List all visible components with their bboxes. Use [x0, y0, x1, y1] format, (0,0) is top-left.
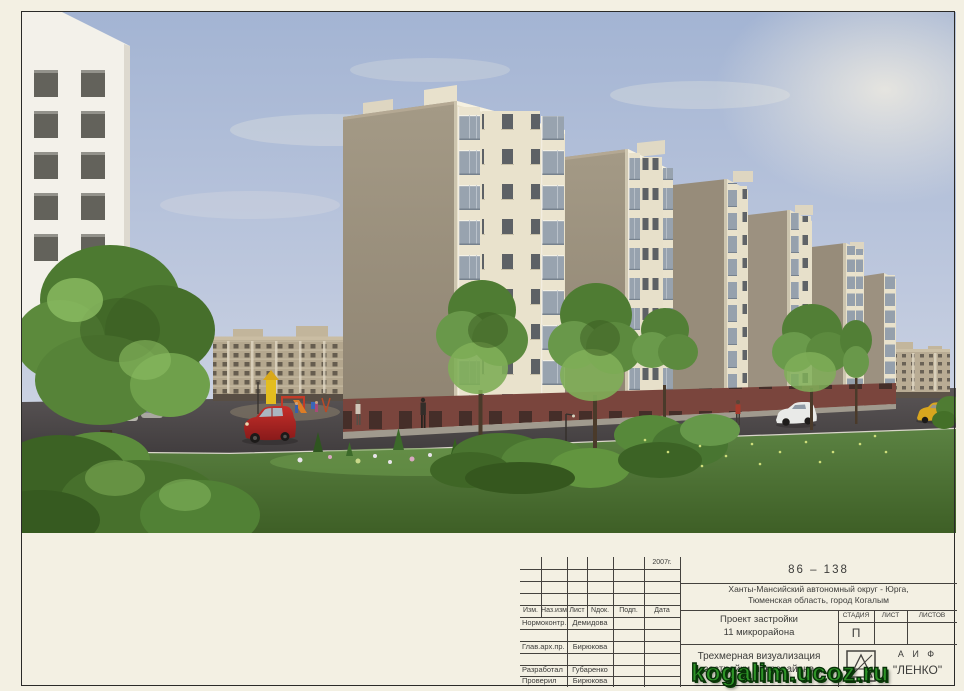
name-normcontrol: Демидова [567, 617, 613, 629]
col-header-izm: Изм. [520, 605, 541, 617]
company-name-lenko: "ЛЕНКО" [878, 660, 957, 680]
sheet-header: ЛИСТ [874, 610, 907, 622]
col-header-list: Лист [567, 605, 587, 617]
role-normcontrol: Нормоконтр. [522, 617, 567, 629]
role-chief-architect: Глав.арх.пр. [522, 641, 567, 653]
sheets-header: ЛИСТОВ [907, 610, 957, 622]
document-number: 86 – 138 [680, 557, 957, 583]
drawing-sheet: 2007г. 86 – 138 Ханты-Мансийский автоном… [0, 0, 964, 691]
col-header-podp: Подп. [613, 605, 644, 617]
name-chief-architect: Бирюкова [567, 641, 613, 653]
project-title: Проект застройки 11 микрорайона [680, 614, 838, 644]
location: Ханты-Мансийский автономный округ - Юрга… [680, 584, 957, 610]
col-header-ndok: Nдок. [587, 605, 613, 617]
site-watermark: kogalim.ucoz.ru [691, 659, 889, 688]
stage-value: П [838, 622, 874, 644]
col-header-data: Дата [644, 605, 680, 617]
stage-header: СТАДИЯ [838, 610, 874, 622]
col-header-naz: Наз.изм [541, 605, 567, 617]
role-checked: Проверил [522, 675, 567, 687]
year-note: 2007г. [644, 557, 680, 569]
name-checked: Бирюкова [567, 675, 613, 687]
